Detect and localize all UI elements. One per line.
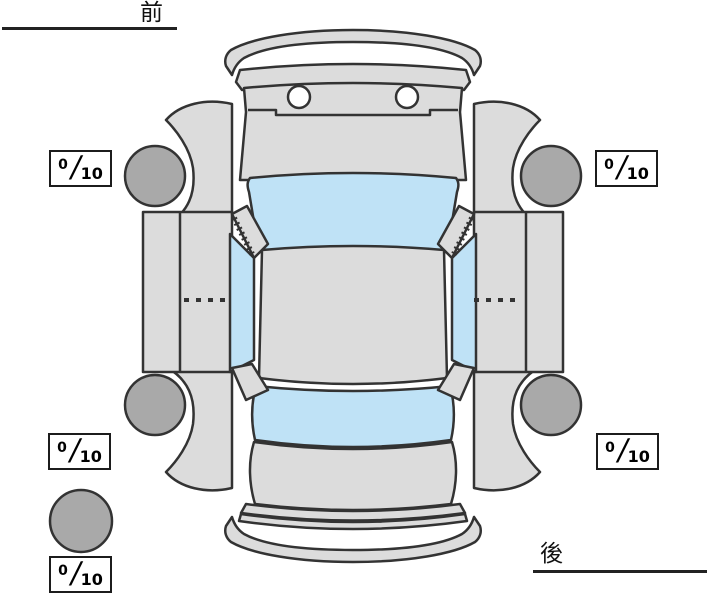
headlight-left-icon [288, 86, 310, 108]
score-separator: / [617, 153, 627, 182]
score-max: 10 [628, 447, 650, 466]
score-value: 0 [604, 157, 614, 173]
windshield [248, 173, 459, 252]
score-separator: / [70, 436, 80, 465]
rear-window [252, 386, 454, 447]
roof [259, 246, 447, 384]
tire-front-right-icon [521, 146, 581, 206]
score-max: 10 [627, 164, 649, 183]
tire-rear-left-icon [125, 375, 185, 435]
score-box-rear-left: 0 / 10 [48, 433, 111, 470]
side-panel-right [474, 212, 563, 372]
score-separator: / [618, 436, 628, 465]
car-top-view [0, 0, 711, 600]
headlight-right-icon [396, 86, 418, 108]
score-value: 0 [58, 563, 68, 579]
score-max: 10 [80, 447, 102, 466]
score-value: 0 [58, 157, 68, 173]
score-box-rear-right: 0 / 10 [596, 433, 659, 470]
score-separator: / [71, 153, 81, 182]
spare-tire-icon [50, 490, 112, 552]
score-box-front-left: 0 / 10 [49, 150, 112, 187]
score-box-spare: 0 / 10 [49, 556, 112, 593]
score-separator: / [71, 559, 81, 588]
score-box-front-right: 0 / 10 [595, 150, 658, 187]
car-condition-diagram: 前 後 0 / 10 0 / 10 0 / 10 0 / 10 0 / 10 [0, 0, 711, 600]
side-panel-left [143, 212, 232, 372]
score-value: 0 [57, 440, 67, 456]
hood [240, 83, 466, 180]
score-max: 10 [81, 570, 103, 589]
rear-underline [533, 570, 707, 573]
score-max: 10 [81, 164, 103, 183]
score-value: 0 [605, 440, 615, 456]
tire-rear-right-icon [521, 375, 581, 435]
tire-front-left-icon [125, 146, 185, 206]
rear-label: 後 [540, 541, 563, 567]
front-label: 前 [140, 0, 163, 26]
trunk [250, 442, 456, 510]
front-underline [2, 27, 177, 30]
